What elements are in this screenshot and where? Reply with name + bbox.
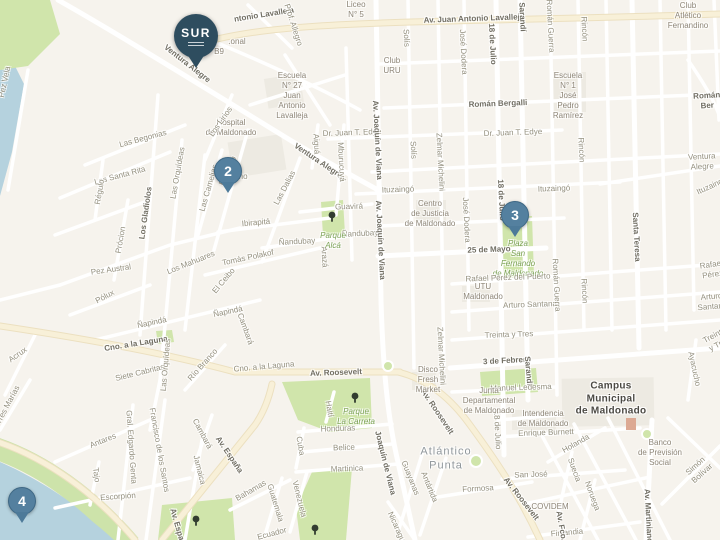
street-label: Martinica xyxy=(331,463,364,474)
marker-4-number: 4 xyxy=(8,487,36,515)
street-label: Gral. Edgardo Genta xyxy=(123,410,138,484)
street-label: El Ceibo xyxy=(210,266,237,296)
street-label: Av. Roosevelt xyxy=(501,475,541,522)
street-label: Bahamas xyxy=(234,478,268,504)
poi-label: Centro de Justicia de Maldonado xyxy=(405,199,456,229)
street-label: 18 de Julio xyxy=(491,410,503,449)
street-label: Rafael Pérez del Puerto xyxy=(465,272,550,285)
sur-pin[interactable]: SUR xyxy=(174,14,218,68)
park-label: Plaza San Fernando de Maldonado xyxy=(493,239,544,279)
street-label: Régulo xyxy=(93,179,107,206)
marker-4-tail xyxy=(15,512,29,523)
street-label: Belice xyxy=(333,443,355,454)
poi-label: Club URU xyxy=(383,56,400,76)
street-label: Tres Marías xyxy=(0,384,22,426)
street-label: Noruega xyxy=(582,480,602,512)
poi-label: Junta Departamental de Maldonado xyxy=(463,386,515,416)
poi-label: Escuela N° 27 Juan Antonio Lavalleja xyxy=(276,71,308,121)
sur-pin-logo: SUR xyxy=(174,14,218,58)
street-label: Rincón xyxy=(578,16,589,41)
street-label: Guayanas xyxy=(399,459,422,497)
sur-pin-line xyxy=(188,42,204,43)
street-label: Rafael Pérez xyxy=(699,258,720,281)
street-label: San José xyxy=(514,469,548,480)
street-label: 25 de Mayo xyxy=(467,244,510,255)
poi-label: Disco Fresh Market xyxy=(416,365,440,395)
street-label: Formosa xyxy=(462,483,494,495)
area-label: Campus Municipal de Maldonado xyxy=(576,380,647,418)
street-label: Solís xyxy=(408,141,419,159)
street-label: Jamaica xyxy=(191,454,208,485)
street-label: Zelmar Michelini xyxy=(433,133,446,192)
street-label: Suecia xyxy=(565,457,583,483)
poi-label: .onal xyxy=(228,37,245,47)
street-label: Ecuador xyxy=(256,525,287,540)
street-label: Ituzaingó xyxy=(538,183,571,194)
poi-label: Banco de Previsión Social xyxy=(638,438,682,468)
street-label: Enrique Burnett xyxy=(518,427,574,439)
street-label: Román Guerra xyxy=(544,0,557,53)
sur-pin-text: SUR xyxy=(181,26,211,40)
street-label: Los Lirios xyxy=(207,105,235,139)
street-label: Haití xyxy=(323,400,336,418)
street-label: Arturo Santana xyxy=(696,291,720,314)
street-label: Manuel Ledesma xyxy=(490,382,552,394)
sur-pin-tail xyxy=(187,54,205,68)
street-label: Finlandia xyxy=(550,527,583,540)
street-label: Ayacucho xyxy=(685,351,702,387)
poi-label: Hospital de Maldonado xyxy=(206,118,257,138)
street-label: Ñandubay xyxy=(279,236,316,248)
street-label: 18 de Julio xyxy=(486,23,498,65)
poi-label: COVIDEM xyxy=(531,502,568,512)
street-label: Av. Roosevelt xyxy=(418,388,455,437)
street-label: Francisco de los Santos xyxy=(147,407,172,493)
label-layer: ntonio LavallejaLiceo N° 5Av. Juan Anton… xyxy=(0,0,720,540)
poi-label: Escuela N° 1 José Pedro Ramírez xyxy=(553,71,583,121)
street-label: Pez Vela xyxy=(0,66,13,99)
marker-3[interactable]: 3 xyxy=(501,201,529,237)
street-label: ntonio Lavalleja xyxy=(233,5,294,24)
marker-2-number: 2 xyxy=(214,157,242,185)
marker-3-tail xyxy=(508,226,522,237)
marker-2-tail xyxy=(221,182,235,193)
poi-label: Liceo N° 5 xyxy=(346,0,365,20)
street-label: Las Begonias xyxy=(118,128,167,150)
street-label: Av. Fco. xyxy=(553,510,568,540)
street-label: Rincón xyxy=(578,278,589,303)
street-label: Simón Bolívar xyxy=(683,454,715,486)
poi-label: Intendencia de Maldonado xyxy=(518,409,569,429)
street-label: Tajo xyxy=(90,467,102,483)
street-label: Honduras xyxy=(320,423,355,434)
street-label: Antártida xyxy=(418,470,439,503)
street-label: Holanda xyxy=(561,432,592,456)
street-label: Prof. Allegro xyxy=(282,3,305,48)
street-label: Mburucuyá xyxy=(335,142,347,182)
area-label: Atlántico Punta xyxy=(420,445,471,473)
street-label: Guavirá xyxy=(335,202,363,213)
street-label: Las Orquídeas xyxy=(169,146,188,199)
street-label: José Dodera xyxy=(457,29,469,75)
street-label: Cuba xyxy=(293,436,306,457)
street-label: Solís xyxy=(401,29,412,47)
street-label: Antares xyxy=(88,431,117,451)
street-label: 3 de Febrero xyxy=(483,355,531,367)
street-label: Ñapindá xyxy=(212,304,243,320)
street-label: Dr. Juan T. Edye xyxy=(484,127,543,139)
street-label: Las Orquídeas xyxy=(159,338,174,391)
street-label: Treinta y Tres xyxy=(485,329,534,341)
street-label: Joaquín de Viana xyxy=(372,430,398,496)
poi-label: UTU Maldonado xyxy=(463,282,503,302)
street-label: Río Branco xyxy=(186,347,220,383)
street-label: Román Guerra xyxy=(550,258,563,311)
street-label: Dr. Juan T. Edye xyxy=(323,127,382,139)
street-label: Aiguá xyxy=(310,134,321,155)
street-label: Av. España xyxy=(167,507,188,540)
map-canvas[interactable]: ntonio LavallejaLiceo N° 5Av. Juan Anton… xyxy=(0,0,720,540)
park-label: Parque Alcá xyxy=(320,231,346,251)
street-label: Av. Martiniano xyxy=(642,489,655,540)
street-label: Av. España xyxy=(213,435,245,476)
street-label: Ventura Alegre xyxy=(688,151,717,172)
street-label: Siete Cabritas xyxy=(114,362,165,384)
street-label: Román Ber xyxy=(693,90,720,111)
park-label: Parque La Carreta xyxy=(337,407,375,427)
marker-2[interactable]: 2 xyxy=(214,157,242,193)
sur-pin-line xyxy=(188,45,204,46)
street-label: Ñapindá xyxy=(136,315,167,331)
street-label: Ibirapitá xyxy=(241,217,270,229)
street-label: Treinta y Tres xyxy=(701,325,720,354)
street-label: Guatemala xyxy=(264,483,285,523)
street-label: Venezuela xyxy=(290,480,309,519)
street-label: Las Santa Rita xyxy=(93,164,146,187)
street-label: Román Bergalli xyxy=(468,98,527,110)
street-label: Ituzaingó xyxy=(695,175,720,198)
street-label: Acrux xyxy=(7,345,29,365)
street-label: Pez Austral xyxy=(90,262,131,278)
street-label: Cno. a la Laguna xyxy=(104,334,169,354)
street-label: Arturo Santana xyxy=(503,299,557,311)
street-label: Santa Teresa xyxy=(630,212,643,262)
marker-3-number: 3 xyxy=(501,201,529,229)
marker-4[interactable]: 4 xyxy=(8,487,36,523)
street-label: Av. Roosevelt xyxy=(310,367,362,379)
street-label: Av. Joaquín de Viana xyxy=(373,200,387,280)
street-label: Ventura Alegre xyxy=(292,141,344,181)
street-label: Pólux xyxy=(94,288,116,306)
street-label: Cambará xyxy=(190,417,214,451)
street-label: Cno. a la Laguna xyxy=(233,359,295,374)
street-label: Tomás Polakof xyxy=(221,248,274,269)
street-label: Arazá xyxy=(318,246,329,267)
street-label: Av. Joaquín de Viana xyxy=(370,100,384,180)
street-label: Av. Juan Antonio Lavalleja xyxy=(424,12,525,26)
street-label: Zelmar Michelini xyxy=(434,327,447,386)
street-label: Las Dalias xyxy=(272,169,298,207)
street-label: Sarandí xyxy=(522,356,535,386)
street-label: Cambará xyxy=(235,312,256,346)
street-label: Los Gladiolos xyxy=(137,186,154,240)
street-label: Nicaragua xyxy=(385,510,409,540)
street-label: Rincón xyxy=(575,137,586,162)
street-label: Sarandí xyxy=(516,2,528,32)
street-label: Los Mahuares xyxy=(166,249,217,277)
street-label: Escorpión xyxy=(100,491,136,503)
street-label: Ituzaingó xyxy=(382,184,415,195)
poi-label: Club Atlético Fernandino xyxy=(668,1,708,31)
street-label: Prócion xyxy=(114,226,129,254)
street-label: Ñandubay xyxy=(342,228,379,240)
street-label: José Dodera xyxy=(460,197,472,243)
